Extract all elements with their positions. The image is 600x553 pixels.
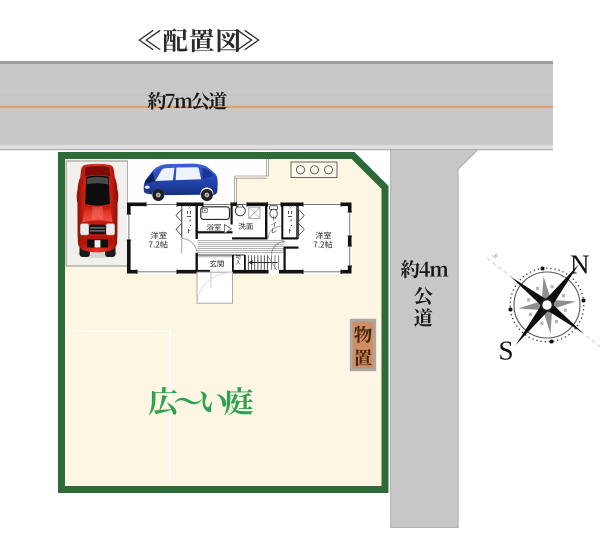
- svg-text:w: w: [491, 250, 501, 261]
- svg-text:N: N: [570, 250, 590, 280]
- svg-text:S: S: [499, 336, 514, 366]
